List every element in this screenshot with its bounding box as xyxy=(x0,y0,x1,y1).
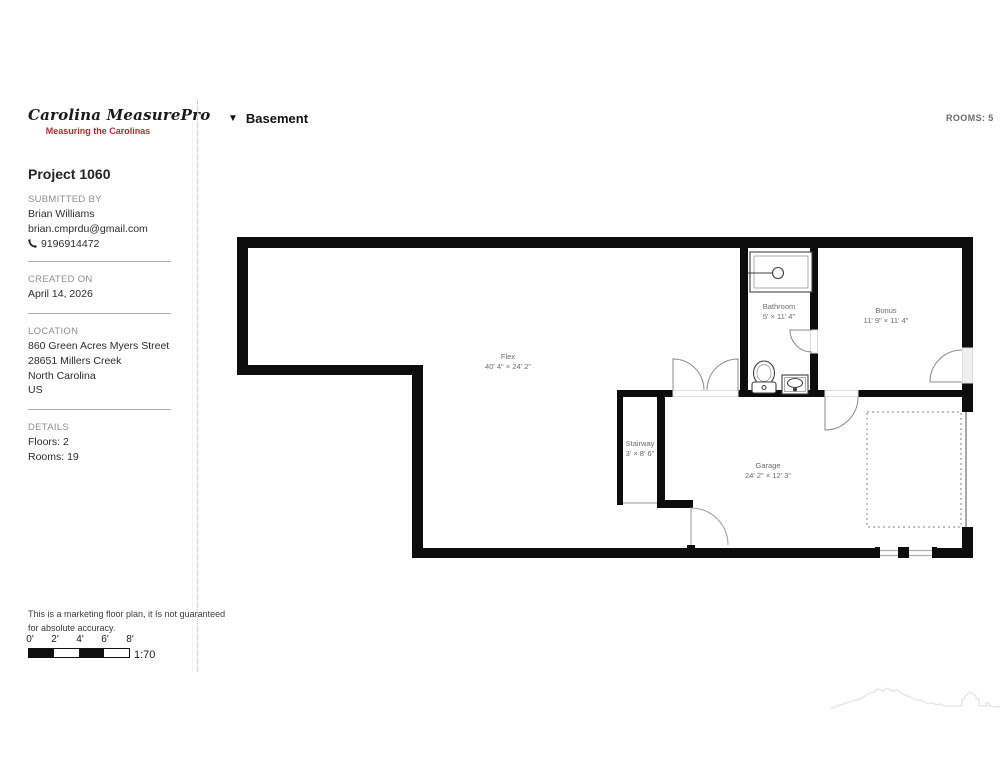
location-country: US xyxy=(28,383,176,398)
brand-logo: Carolina MeasurePro xyxy=(28,106,176,124)
project-title: Project 1060 xyxy=(28,166,176,182)
walls xyxy=(237,237,973,558)
brand-tagline: Measuring the Carolinas xyxy=(28,126,168,136)
room-dims-bathroom: 5' × 11' 4" xyxy=(763,312,796,321)
room-dims-bonus: 11' 9" × 11' 4" xyxy=(864,316,909,325)
location-label: LOCATION xyxy=(28,326,176,337)
details-floors: Floors: 2 xyxy=(28,435,176,450)
created-on-label: CREATED ON xyxy=(28,274,176,285)
scale-ruler xyxy=(28,648,130,658)
parking-space-outline xyxy=(867,412,961,527)
mountain-watermark xyxy=(828,683,1003,725)
phone-icon xyxy=(28,239,37,248)
floor-plan-report-page: { "branding": { "logo": "Carolina Measur… xyxy=(0,0,1008,778)
sidebar-divider xyxy=(28,313,171,314)
submitted-by-email: brian.cmprdu@gmail.com xyxy=(28,222,176,237)
scale-tick-6: 6' xyxy=(101,634,108,645)
disclaimer-line1: This is a marketing floor plan, it Is no… xyxy=(28,608,225,622)
scale-tick-8: 8' xyxy=(126,634,133,645)
room-dims-stairway: 3' × 8' 6" xyxy=(626,449,655,458)
chevron-down-icon[interactable]: ▼ xyxy=(228,114,238,124)
location-city: 28651 Millers Creek xyxy=(28,354,176,369)
garage-door xyxy=(875,547,937,558)
scale-bar: 0' 2' 4' 6' 8' 1:70 xyxy=(28,634,198,668)
created-on-date: April 14, 2026 xyxy=(28,287,176,302)
sidebar-divider xyxy=(28,261,171,262)
bathroom-fixtures xyxy=(748,252,812,394)
floor-section-toggle[interactable]: ▼ Basement xyxy=(228,111,308,126)
details-rooms: Rooms: 19 xyxy=(28,450,176,465)
scale-tick-4: 4' xyxy=(76,634,83,645)
shower-tub xyxy=(748,252,812,292)
submitted-by-name: Brian Williams xyxy=(28,207,176,222)
sink-vanity xyxy=(782,375,808,394)
room-dims-garage: 24' 2" × 12' 3" xyxy=(745,471,791,480)
door-openings xyxy=(673,330,973,397)
room-label-stairway: Stairway xyxy=(626,439,655,448)
room-label-flex: Flex xyxy=(501,352,515,361)
room-label-garage: Garage xyxy=(755,461,780,470)
submitted-by-label: SUBMITTED BY xyxy=(28,194,176,205)
floor-name: Basement xyxy=(246,111,308,126)
submitted-by-phone: 9196914472 xyxy=(41,238,99,250)
basement-floor-plan: Flex 40' 4" × 24' 2" Bathroom 5' × 11' 4… xyxy=(230,230,975,570)
scale-tick-2: 2' xyxy=(51,634,58,645)
disclaimer-line2: for absolute accuracy. xyxy=(28,622,225,636)
details-label: DETAILS xyxy=(28,422,176,433)
sidebar-divider xyxy=(28,409,171,410)
disclaimer: This is a marketing floor plan, it Is no… xyxy=(28,608,225,635)
toilet xyxy=(752,361,776,393)
room-label-bathroom: Bathroom xyxy=(763,302,796,311)
room-label-bonus: Bonus xyxy=(875,306,897,315)
location-street: 860 Green Acres Myers Street xyxy=(28,339,176,354)
sidebar-separator-dotted xyxy=(197,100,198,672)
scale-tick-0: 0' xyxy=(26,634,33,645)
room-dims-flex: 40' 4" × 24' 2" xyxy=(485,362,531,371)
scale-ratio: 1:70 xyxy=(134,649,155,661)
rooms-count-badge: ROOMS: 5 xyxy=(946,113,994,123)
location-state: North Carolina xyxy=(28,369,176,384)
sidebar: Carolina MeasurePro Measuring the Caroli… xyxy=(28,106,176,465)
